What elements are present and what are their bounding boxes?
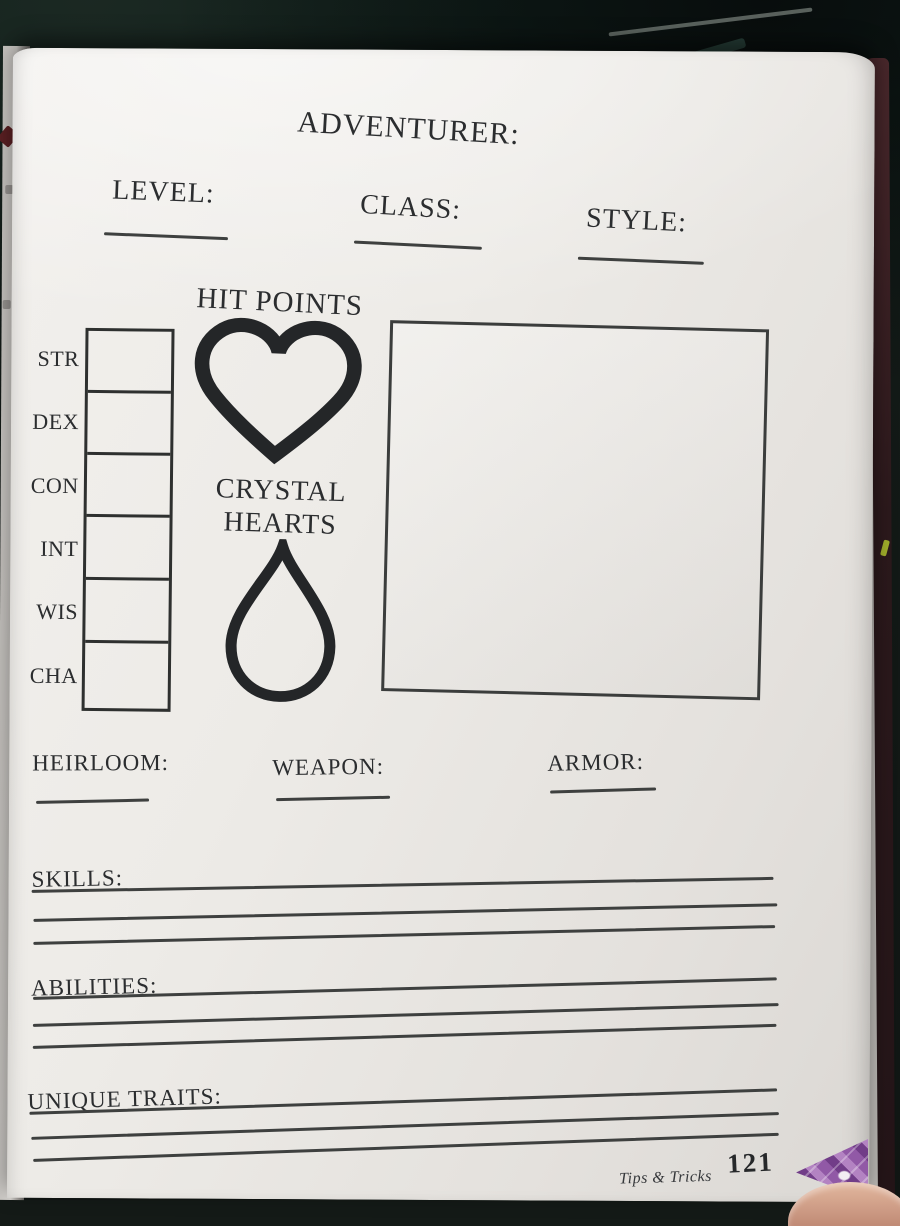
style-field-label: STYLE: [585,203,687,240]
stat-box-int [86,518,170,581]
sheet-title: ADVENTURER: [258,103,559,154]
footer-page-number: 121 [726,1147,774,1180]
abilities-blank-line [33,1024,777,1049]
heirloom-field-blank-line [36,799,149,804]
teardrop-outline-icon [214,538,348,706]
stat-boxes-column [82,328,175,712]
level-field-blank-line [104,232,228,240]
crystal-hearts-line2: HEARTS [223,506,337,541]
stat-label-dex: DEX [27,409,79,435]
weapon-field-label: WEAPON: [272,754,384,781]
heart-outline-icon [188,312,366,469]
portrait-box [381,320,769,700]
stat-box-con [87,455,171,518]
skills-blank-line [32,877,774,893]
style-field-blank-line [578,257,704,265]
armor-field-label: ARMOR: [547,749,644,777]
unique-traits-blank-line [33,1133,779,1162]
stat-box-cha [85,644,169,709]
photo-scene: ADVENTURER: LEVEL: CLASS: STYLE: HIT POI… [0,0,900,1200]
stat-box-wis [85,581,169,644]
stat-label-cha: CHA [26,663,78,689]
skills-blank-line [33,925,775,945]
stat-label-str: STR [27,346,79,372]
weapon-field-blank-line [276,796,390,801]
crystal-hearts-label: CRYSTAL HEARTS [178,471,384,543]
abilities-blank-line [33,1003,779,1027]
level-field-label: LEVEL: [112,174,216,210]
crystal-hearts-line1: CRYSTAL [215,473,347,508]
stat-label-int: INT [26,536,78,562]
character-sheet-page: ADVENTURER: LEVEL: CLASS: STYLE: HIT POI… [7,48,875,1202]
heirloom-field-label: HEIRLOOM: [32,750,169,776]
class-field-blank-line [354,241,482,250]
footer-book-title: Tips & Tricks [619,1168,712,1189]
stat-label-wis: WIS [26,599,78,625]
stat-box-str [88,331,172,394]
class-field-label: CLASS: [359,189,462,227]
armor-field-blank-line [550,787,656,793]
unique-traits-blank-line [31,1112,779,1140]
skills-blank-line [33,903,777,922]
stat-box-dex [87,393,171,456]
stat-label-con: CON [27,473,79,499]
page-edge-print-mark [3,300,11,309]
